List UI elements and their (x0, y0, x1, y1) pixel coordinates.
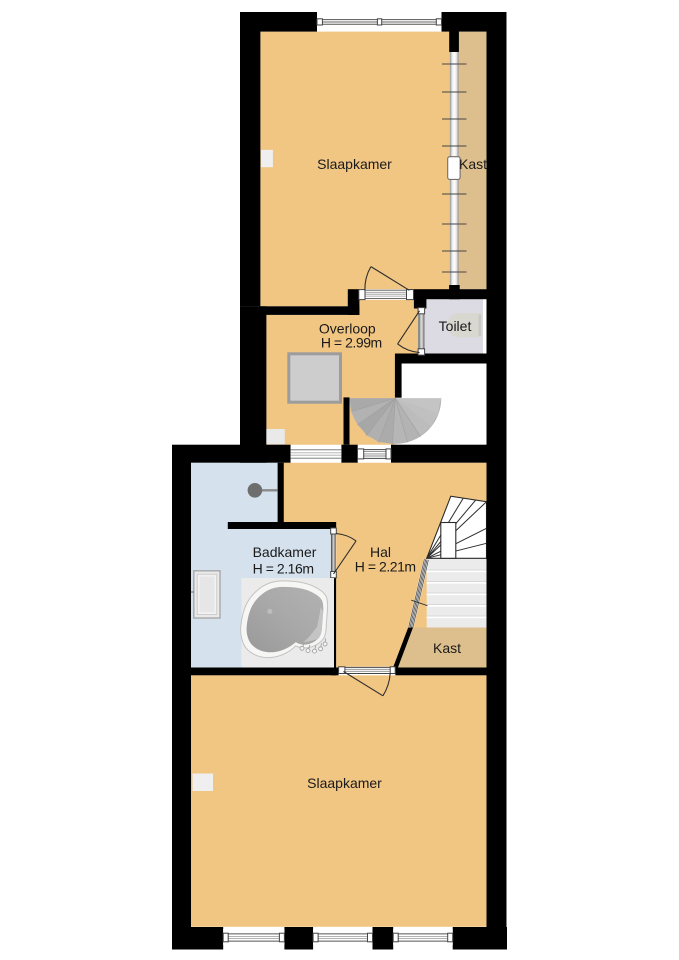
svg-text:H = 2.21m: H = 2.21m (355, 559, 416, 575)
svg-text:Toilet: Toilet (439, 318, 472, 334)
svg-text:Slaapkamer: Slaapkamer (307, 775, 382, 791)
svg-text:Kast: Kast (459, 156, 487, 172)
svg-text:Kast: Kast (433, 640, 461, 656)
svg-text:H = 2.99m: H = 2.99m (321, 335, 382, 351)
svg-text:H = 2.16m: H = 2.16m (253, 560, 314, 576)
svg-text:Badkamer: Badkamer (253, 544, 317, 560)
svg-text:Slaapkamer: Slaapkamer (317, 156, 392, 172)
